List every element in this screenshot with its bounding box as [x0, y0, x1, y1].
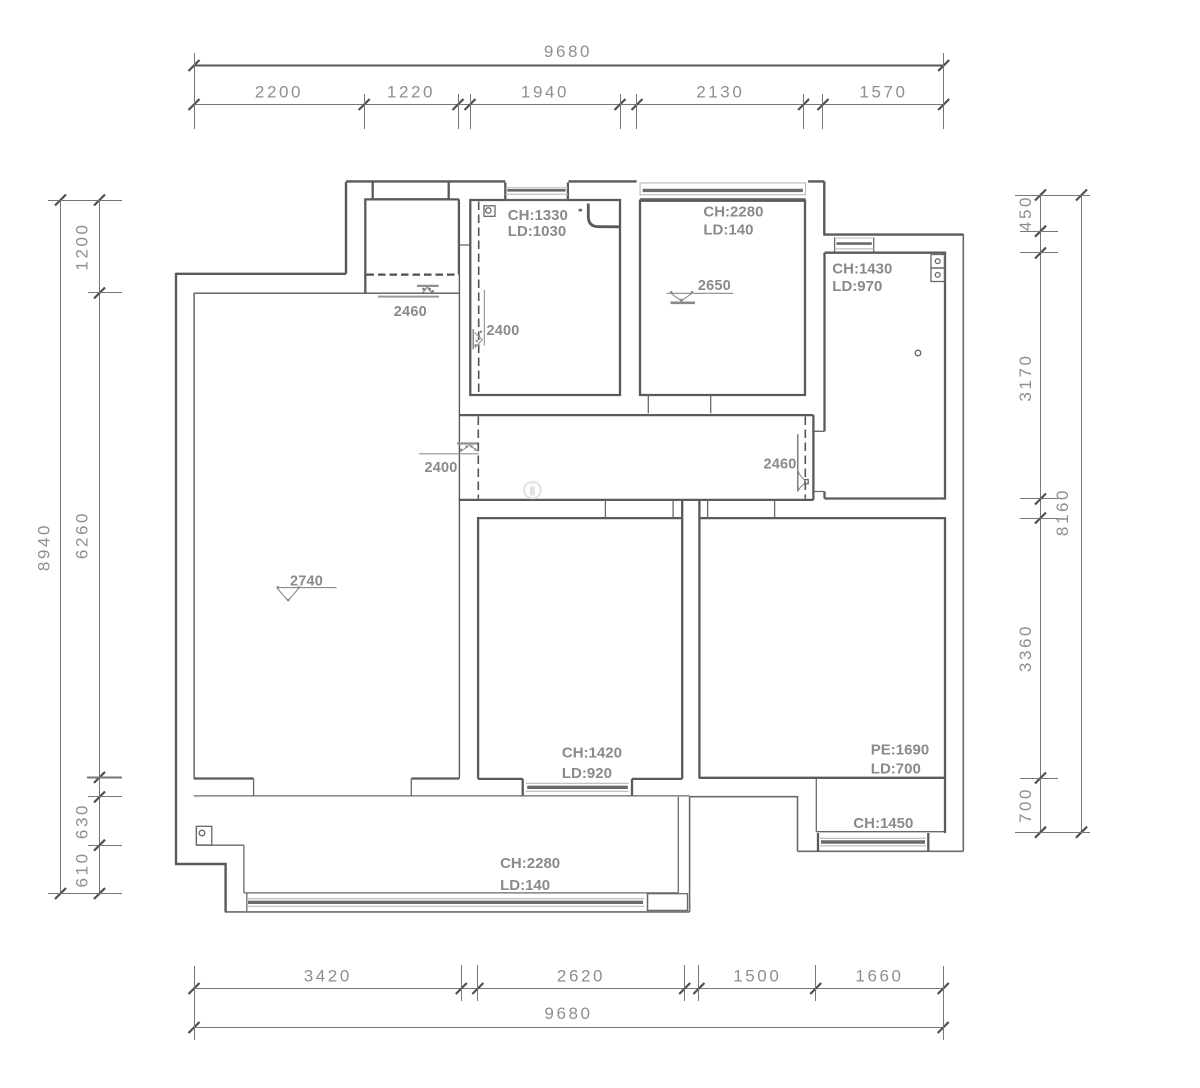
svg-text:2460: 2460 — [394, 304, 427, 320]
svg-text:2200: 2200 — [255, 83, 303, 102]
svg-text:1570: 1570 — [859, 83, 907, 102]
svg-text:CH:1420: CH:1420 — [562, 745, 622, 762]
svg-text:LD:700: LD:700 — [871, 761, 921, 778]
svg-text:2740: 2740 — [290, 574, 323, 590]
svg-text:2400: 2400 — [425, 460, 458, 476]
svg-text:1220: 1220 — [387, 83, 435, 102]
svg-text:LD:970: LD:970 — [832, 278, 882, 295]
svg-text:630: 630 — [73, 803, 92, 839]
svg-text:1500: 1500 — [733, 967, 781, 986]
svg-text:PE:1690: PE:1690 — [871, 742, 929, 759]
svg-text:700: 700 — [1016, 787, 1035, 823]
svg-text:610: 610 — [73, 851, 92, 887]
svg-text:3170: 3170 — [1016, 353, 1035, 401]
svg-text:LD:920: LD:920 — [562, 765, 612, 782]
svg-text:2460: 2460 — [764, 457, 797, 473]
svg-text:1940: 1940 — [521, 83, 569, 102]
svg-text:8160: 8160 — [1053, 488, 1072, 536]
svg-text:1200: 1200 — [73, 222, 92, 270]
svg-text:8940: 8940 — [35, 523, 54, 571]
svg-text:1660: 1660 — [855, 967, 903, 986]
svg-text:CH:2280: CH:2280 — [703, 204, 763, 221]
svg-text:9680: 9680 — [544, 42, 592, 61]
svg-text:LD:1030: LD:1030 — [508, 223, 566, 240]
svg-text:450: 450 — [1016, 195, 1035, 231]
svg-text:2400: 2400 — [487, 323, 520, 339]
svg-text:LD:140: LD:140 — [703, 222, 753, 239]
svg-text:CH:2280: CH:2280 — [500, 855, 560, 872]
svg-text:9680: 9680 — [544, 1004, 592, 1023]
svg-text:3360: 3360 — [1016, 624, 1035, 672]
svg-text:LD:140: LD:140 — [500, 877, 550, 894]
svg-text:6260: 6260 — [73, 511, 92, 559]
svg-text:2130: 2130 — [696, 83, 744, 102]
svg-text:2650: 2650 — [698, 278, 731, 294]
svg-text:3420: 3420 — [304, 967, 352, 986]
svg-text:CH:1430: CH:1430 — [832, 261, 892, 278]
svg-text:2620: 2620 — [557, 967, 605, 986]
svg-text:CH:1450: CH:1450 — [853, 815, 913, 832]
svg-text:CH:1330: CH:1330 — [508, 207, 568, 224]
